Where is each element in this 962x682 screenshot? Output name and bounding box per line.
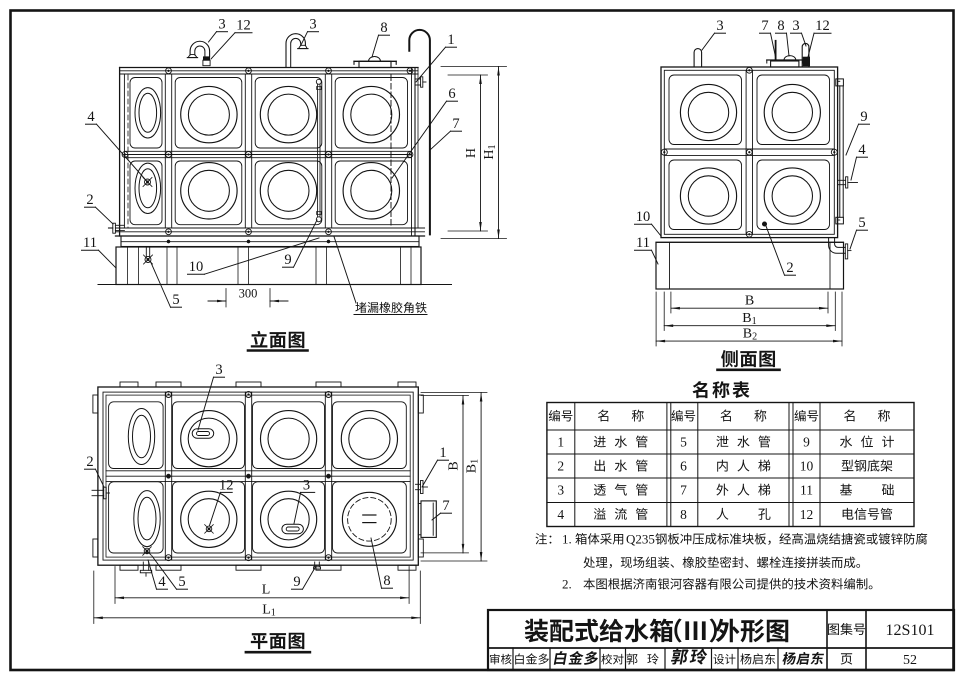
svg-text:12: 12 — [800, 507, 814, 522]
svg-text:5: 5 — [178, 574, 185, 590]
svg-text:9: 9 — [284, 252, 291, 268]
svg-text:8: 8 — [380, 20, 387, 36]
svg-text:4: 4 — [87, 109, 95, 125]
svg-text:12S101: 12S101 — [886, 622, 935, 639]
svg-text:10: 10 — [636, 209, 651, 225]
svg-text:H: H — [464, 148, 479, 158]
svg-text:6: 6 — [680, 459, 687, 474]
svg-text:8: 8 — [383, 573, 390, 589]
svg-text:8: 8 — [777, 18, 784, 34]
svg-text:6: 6 — [448, 86, 455, 102]
svg-text:5: 5 — [680, 435, 687, 450]
svg-text:2: 2 — [86, 454, 93, 470]
svg-text:5: 5 — [172, 292, 179, 308]
svg-text:1: 1 — [557, 435, 564, 450]
svg-text:1: 1 — [439, 445, 446, 461]
svg-text:11: 11 — [83, 235, 97, 251]
svg-text:11: 11 — [636, 235, 650, 251]
svg-text:10: 10 — [800, 459, 814, 474]
svg-text:3: 3 — [792, 18, 799, 34]
svg-text:L: L — [262, 583, 271, 598]
svg-text:B: B — [745, 294, 754, 309]
svg-text:2.: 2. — [562, 577, 572, 592]
svg-text:9: 9 — [803, 435, 810, 450]
svg-text:5: 5 — [858, 215, 865, 231]
svg-text:9: 9 — [293, 574, 300, 590]
svg-text:12: 12 — [236, 18, 251, 34]
svg-text:7: 7 — [761, 18, 768, 34]
svg-text:3: 3 — [218, 17, 225, 33]
svg-text:7: 7 — [452, 116, 459, 132]
svg-text:12: 12 — [815, 18, 830, 34]
svg-text:4: 4 — [858, 142, 866, 158]
svg-text:52: 52 — [903, 653, 917, 668]
svg-text:3: 3 — [215, 362, 222, 378]
svg-text:Q235: Q235 — [626, 532, 655, 547]
svg-text:2: 2 — [786, 260, 793, 276]
svg-text:3: 3 — [303, 478, 310, 494]
svg-text:300: 300 — [239, 287, 258, 301]
svg-text:10: 10 — [189, 259, 204, 275]
svg-text:7: 7 — [442, 498, 449, 514]
svg-text:9: 9 — [860, 109, 867, 125]
svg-text:2: 2 — [557, 459, 564, 474]
svg-text:B: B — [447, 461, 462, 470]
svg-text:4: 4 — [158, 574, 166, 590]
svg-text:11: 11 — [800, 483, 813, 498]
svg-text:2: 2 — [86, 192, 93, 208]
svg-text:8: 8 — [680, 507, 687, 522]
svg-text:1: 1 — [447, 32, 454, 48]
svg-text:4: 4 — [557, 507, 564, 522]
svg-text:12: 12 — [219, 478, 234, 494]
svg-text:3: 3 — [309, 17, 316, 33]
svg-text:3: 3 — [557, 483, 564, 498]
svg-text:7: 7 — [680, 483, 687, 498]
svg-text:1.: 1. — [562, 532, 572, 547]
svg-text:3: 3 — [716, 18, 723, 34]
